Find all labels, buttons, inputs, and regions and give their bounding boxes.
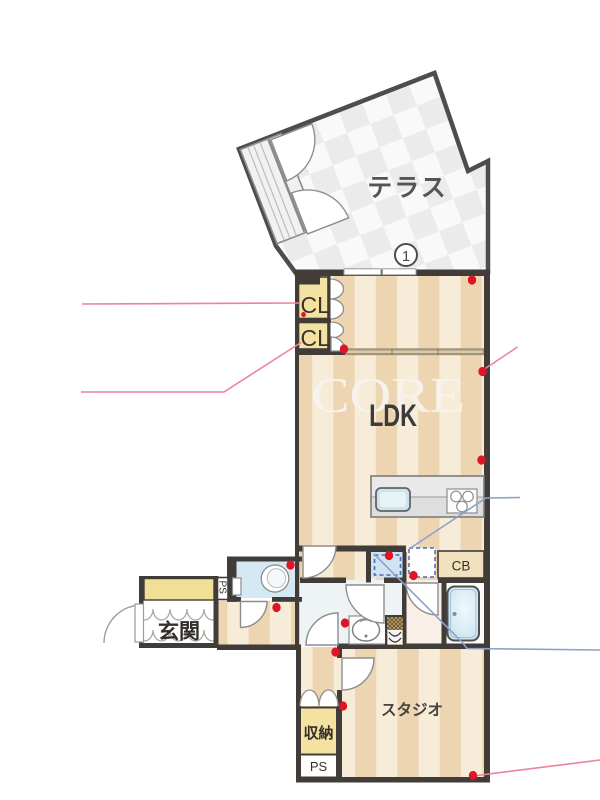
svg-text:玄関: 玄関 — [158, 620, 200, 644]
svg-text:PS: PS — [217, 581, 228, 595]
svg-text:PS: PS — [310, 759, 328, 774]
svg-text:スタジオ: スタジオ — [381, 701, 443, 719]
svg-text:1: 1 — [402, 248, 410, 265]
svg-text:収納: 収納 — [303, 724, 333, 742]
svg-text:LDK: LDK — [369, 398, 417, 433]
svg-text:CB: CB — [452, 559, 471, 574]
svg-text:テラス: テラス — [367, 174, 448, 202]
svg-text:CL: CL — [301, 325, 331, 351]
